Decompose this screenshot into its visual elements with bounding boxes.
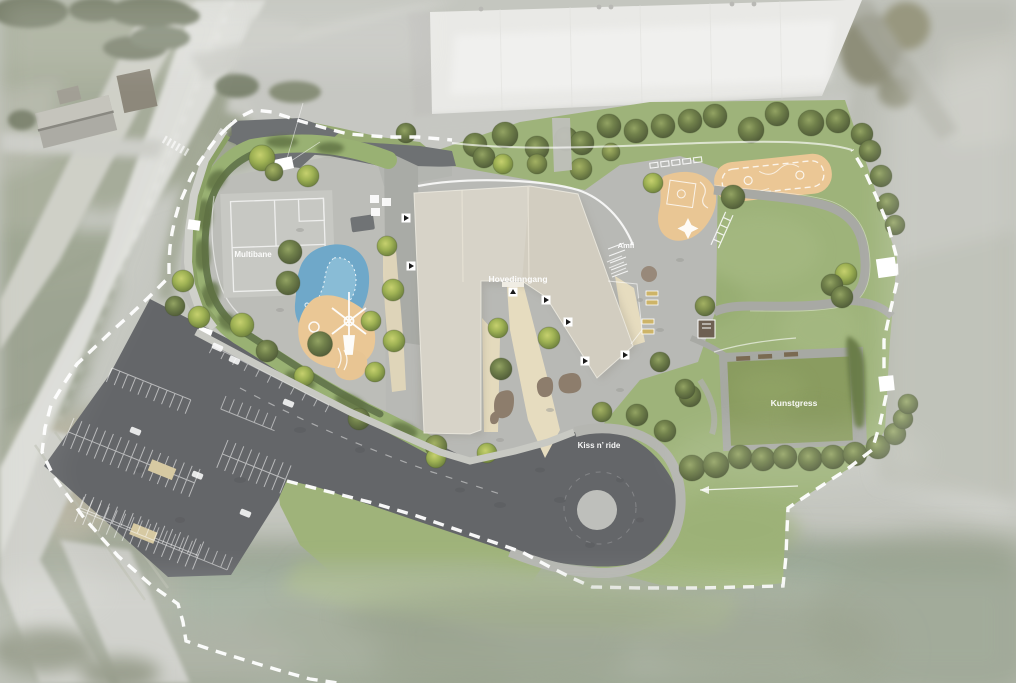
- svg-text:Amfi: Amfi: [618, 241, 635, 250]
- svg-text:Kiss n’ ride: Kiss n’ ride: [578, 441, 621, 450]
- svg-text:Multibane: Multibane: [234, 250, 272, 259]
- svg-text:Kunstgress: Kunstgress: [771, 398, 818, 408]
- svg-text:Hovedinngang: Hovedinngang: [488, 274, 547, 284]
